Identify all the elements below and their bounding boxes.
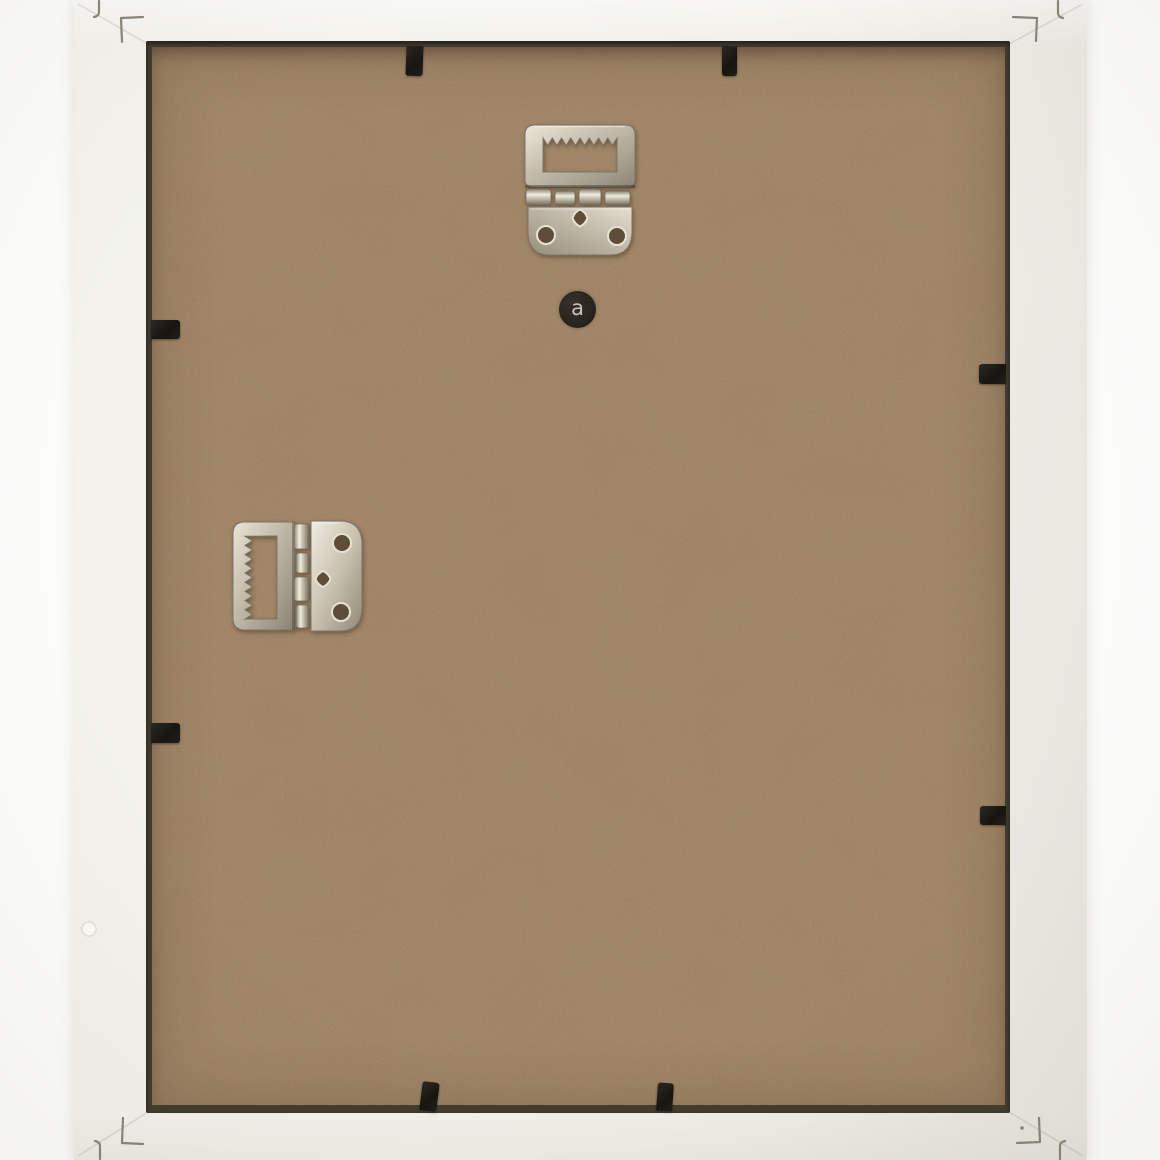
clip-top-left: [405, 46, 423, 77]
frame-top-sheen: [74, 0, 1087, 46]
clip-bottom-right: [656, 1082, 674, 1111]
frame-bottom-sheen: [74, 1112, 1087, 1160]
clip-right-lower: [980, 806, 1006, 825]
product-photo: a: [0, 0, 1160, 1160]
stamp-letter: a: [571, 298, 584, 319]
sawtooth-hanger-left: [228, 517, 366, 635]
clip-top-right: [722, 46, 737, 76]
sawtooth-hanger-top: [521, 119, 639, 259]
clip-left-lower: [151, 723, 180, 743]
clip-bottom-left: [419, 1081, 439, 1112]
clip-left-upper: [151, 320, 180, 339]
maker-stamp: a: [559, 291, 596, 328]
clip-right-upper: [979, 364, 1006, 384]
